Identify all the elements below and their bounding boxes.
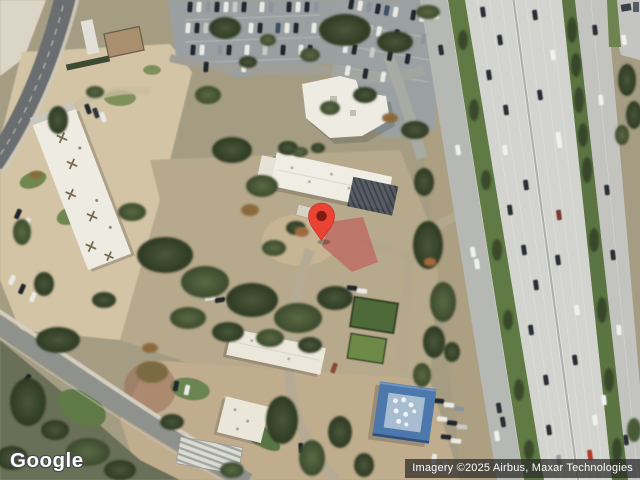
imagery-attribution: Imagery ©2025 Airbus, Maxar Technologies (405, 459, 640, 478)
blue-roof-building (368, 381, 437, 448)
google-logo[interactable]: Google (8, 446, 104, 474)
attribution-text: Imagery ©2025 Airbus, Maxar Technologies (412, 462, 633, 474)
map-canvas[interactable]: Google Imagery ©2025 Airbus, Maxar Techn… (0, 0, 640, 480)
satellite-imagery (0, 0, 640, 480)
google-logo-text: Google (10, 449, 84, 472)
marker-dot (316, 211, 326, 221)
